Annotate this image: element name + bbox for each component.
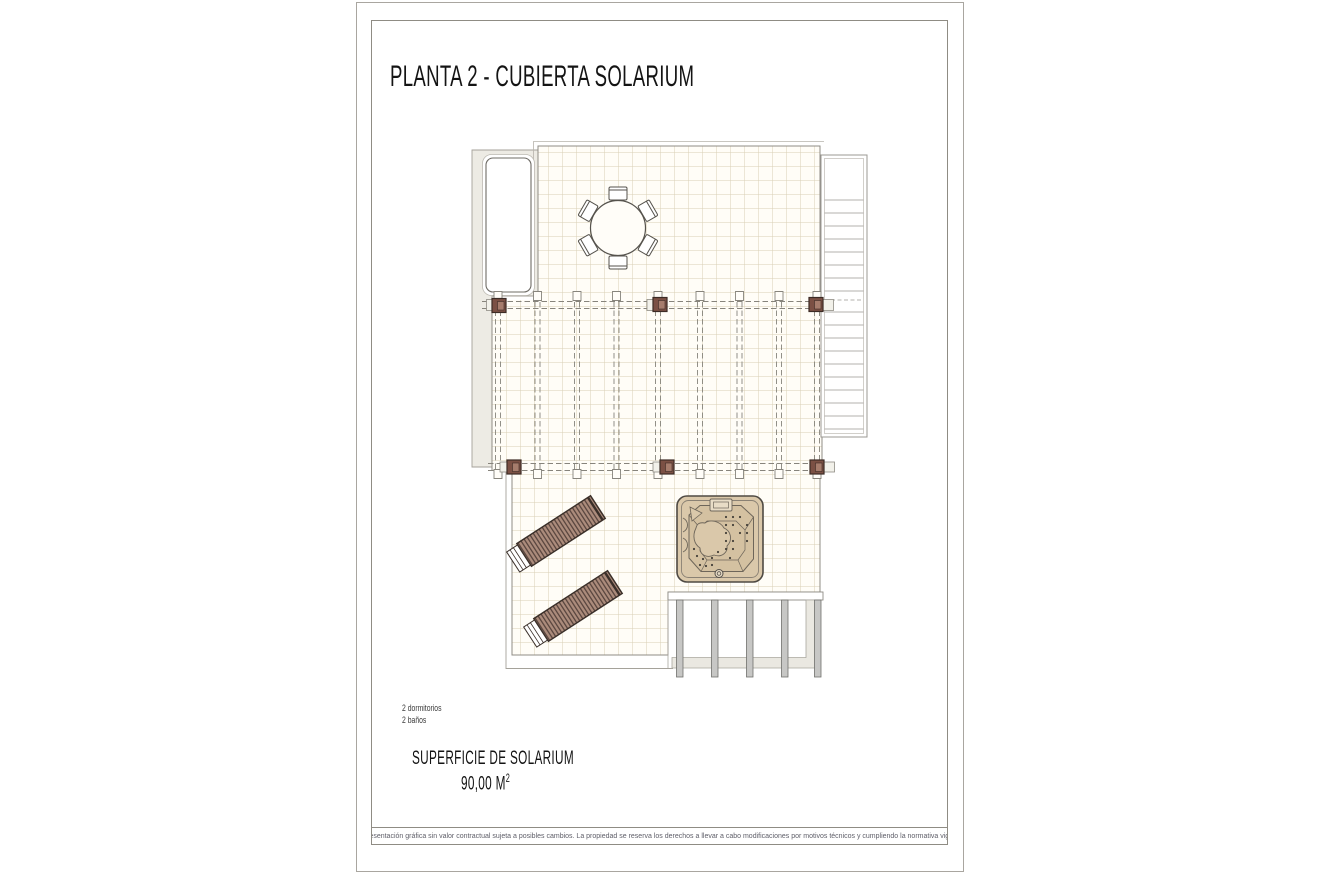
disclaimer-box: Representación gráfica sin valor contrac… bbox=[371, 827, 948, 845]
surface-label: SUPERFICIE DE SOLARIUM bbox=[412, 748, 574, 770]
table-top bbox=[591, 201, 646, 256]
surface-value: 90,00 M2 bbox=[461, 772, 510, 795]
pergola-column bbox=[810, 460, 824, 474]
skylight bbox=[483, 155, 535, 296]
pergola-terrace-tiles bbox=[492, 300, 822, 470]
jacuzzi bbox=[677, 496, 763, 582]
plan-sheet-page: PLANTA 2 - CUBIERTA SOLARIUM bbox=[0, 0, 1320, 859]
pergola-column bbox=[507, 460, 521, 474]
disclaimer-text: Representación gráfica sin valor contrac… bbox=[371, 833, 948, 840]
balcony-posts-area bbox=[668, 592, 823, 677]
page-title: PLANTA 2 - CUBIERTA SOLARIUM bbox=[390, 60, 881, 94]
pergola-column bbox=[653, 298, 667, 312]
surface-block: SUPERFICIE DE SOLARIUM 90,00 M2 bbox=[412, 748, 673, 795]
feature-bedrooms: 2 dormitorios bbox=[402, 703, 442, 715]
upper-terrace-tiles bbox=[534, 142, 825, 301]
pergola-column bbox=[492, 299, 506, 313]
pergola-column bbox=[660, 460, 674, 474]
staircase bbox=[821, 155, 867, 437]
pergola-column bbox=[809, 298, 823, 312]
feature-bathrooms: 2 baños bbox=[402, 715, 426, 727]
floor-plan-drawing bbox=[440, 130, 890, 685]
unit-features: 2 dormitorios 2 baños bbox=[402, 703, 457, 727]
